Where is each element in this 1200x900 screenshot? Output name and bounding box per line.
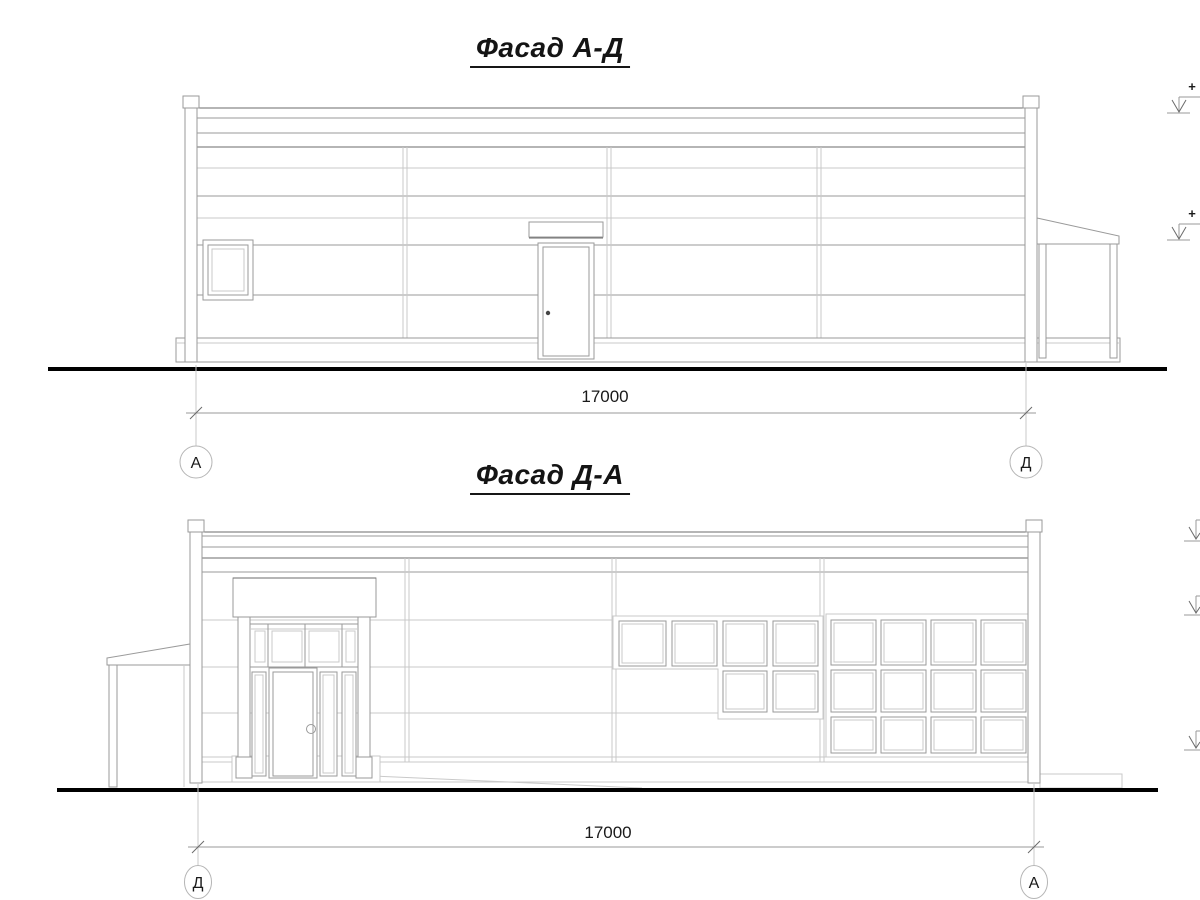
- annex-roof: [107, 644, 190, 665]
- annex-post: [1110, 244, 1117, 358]
- column-cap: [183, 96, 199, 108]
- window-pane: [981, 717, 1026, 753]
- door-canopy: [529, 222, 603, 237]
- window-pane: [773, 621, 818, 666]
- pilaster-base: [236, 757, 252, 778]
- elevation-arrow-icon: [1189, 736, 1200, 748]
- entrance-pilaster: [358, 617, 370, 778]
- elevation-mark: [1184, 596, 1200, 615]
- elevation-plus: +: [1188, 206, 1196, 221]
- elevation-mark: +: [1167, 79, 1200, 113]
- door-handle: [546, 311, 550, 315]
- window-pane: [931, 670, 976, 712]
- facade-ad-panel-lines: [193, 108, 1031, 338]
- window-pane: [981, 670, 1026, 712]
- entrance-sidelight: [342, 672, 356, 776]
- elevation-mark: [1184, 520, 1200, 541]
- dimension-value: 17000: [581, 387, 628, 406]
- elevation-drawing: 17000 А Д + +: [0, 0, 1200, 900]
- elevation-mark: +: [1167, 206, 1200, 240]
- door-frame: [538, 243, 594, 359]
- entrance-sidelight: [252, 672, 266, 776]
- window-pane: [931, 717, 976, 753]
- window-pane: [881, 717, 926, 753]
- axis-label: А: [191, 455, 202, 472]
- axis-label: Д: [1021, 455, 1032, 472]
- right-column: [1028, 532, 1040, 783]
- annex-post: [1039, 244, 1046, 358]
- facade-da-dimension: 17000 Д А: [185, 784, 1048, 899]
- entrance-pilaster: [238, 617, 250, 778]
- window-pane: [931, 620, 976, 665]
- annex-roof: [1037, 218, 1119, 244]
- window-pane: [723, 671, 767, 712]
- window-pane: [831, 620, 876, 665]
- drawing-canvas: Фасад А-Д Фасад Д-А: [0, 0, 1200, 900]
- transom-pane: [255, 631, 265, 662]
- axis-label: А: [1029, 875, 1040, 892]
- entrance-door-frame: [269, 668, 317, 778]
- transom-pane: [346, 631, 355, 662]
- elevation-plus: +: [1188, 79, 1196, 94]
- dimension-value: 17000: [584, 823, 631, 842]
- window-pane: [773, 671, 818, 712]
- left-column: [185, 108, 197, 362]
- elevation-arrow-icon: [1189, 527, 1200, 539]
- window-pane: [723, 621, 767, 666]
- annex-post: [109, 665, 117, 787]
- elevation-mark: [1184, 731, 1200, 750]
- transom-pane: [309, 631, 339, 662]
- transom-pane: [272, 631, 302, 662]
- window-pane: [831, 717, 876, 753]
- facade-ad-drawing: 17000 А Д + +: [48, 79, 1200, 478]
- wall-base: [176, 338, 1120, 362]
- left-column: [190, 532, 202, 783]
- right-column: [1025, 108, 1037, 362]
- entrance-fascia: [233, 578, 376, 617]
- facade-da-drawing: 17000 Д А: [57, 520, 1200, 899]
- column-cap: [188, 520, 204, 532]
- window-pane: [881, 620, 926, 665]
- pilaster-base: [356, 757, 372, 778]
- plinth-step: [1040, 774, 1122, 788]
- column-cap: [1023, 96, 1039, 108]
- facade-ad-dimension: 17000 А Д: [180, 362, 1042, 478]
- column-cap: [1026, 520, 1042, 532]
- window-pane: [881, 670, 926, 712]
- window-pane: [619, 621, 666, 666]
- elevation-arrow-icon: [1189, 601, 1200, 613]
- axis-label: Д: [193, 875, 204, 892]
- window-pane: [672, 621, 717, 666]
- window-pane: [831, 670, 876, 712]
- window-pane: [981, 620, 1026, 665]
